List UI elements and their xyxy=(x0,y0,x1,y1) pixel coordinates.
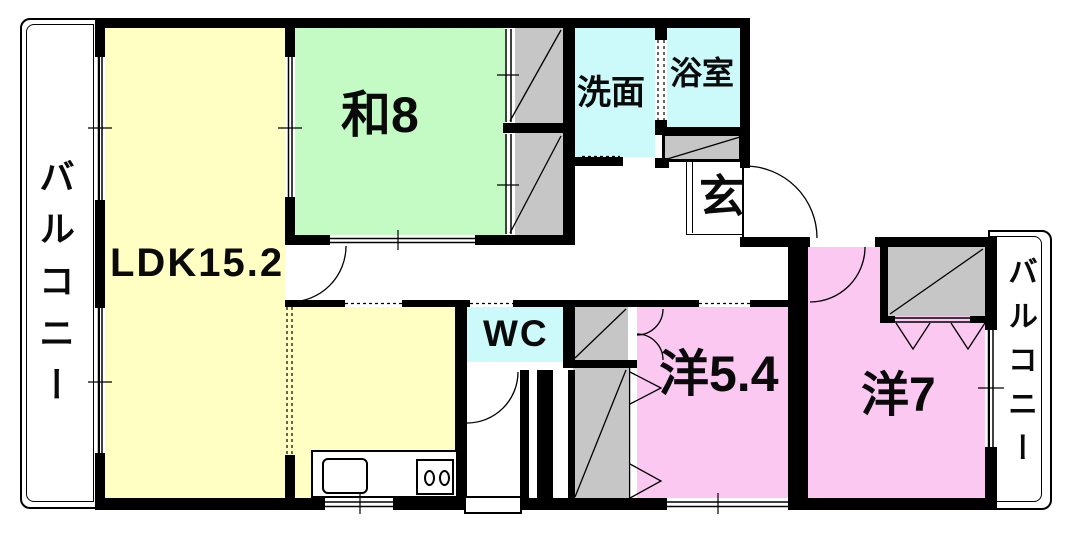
balcony-left-label: バルコニー xyxy=(36,158,72,418)
room-label-genkan: 玄 xyxy=(699,174,744,219)
floor-plan: バルコニー LDK15.2 和8 洗面 浴室 玄 WC 洋5.4 洋7 バルコニ… xyxy=(0,0,1074,535)
room-label-western-54: 洋5.4 xyxy=(659,349,779,399)
room-label-ldk: LDK15.2 xyxy=(110,243,284,283)
room-label-washitsu: 和8 xyxy=(341,90,419,140)
room-label-wc: WC xyxy=(483,315,549,352)
balcony-right-label: バルコニー xyxy=(1004,256,1034,476)
room-label-senmen: 洗面 xyxy=(577,76,645,110)
window-ticks xyxy=(88,75,1004,514)
room-label-western-7: 洋7 xyxy=(861,372,936,420)
room-label-yokushitsu: 浴室 xyxy=(670,57,734,89)
